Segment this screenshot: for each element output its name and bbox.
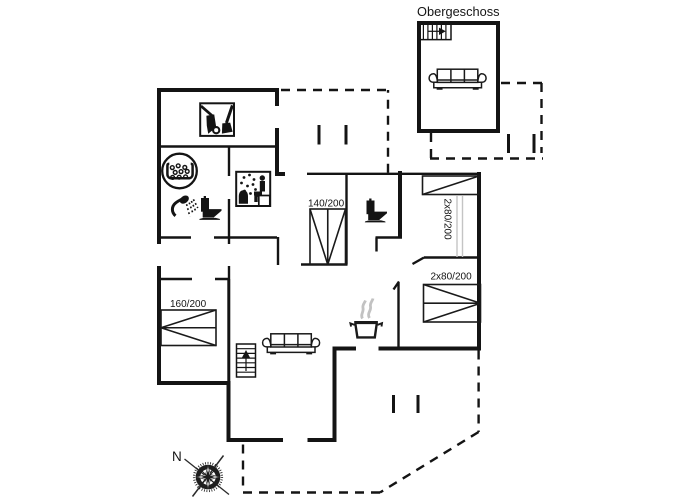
- svg-text:160/200: 160/200: [170, 299, 207, 310]
- svg-text:2x80/200: 2x80/200: [441, 199, 452, 241]
- svg-text:N: N: [172, 449, 182, 464]
- svg-text:140/200: 140/200: [308, 199, 345, 210]
- svg-text:2x80/200: 2x80/200: [431, 272, 473, 283]
- svg-text:Obergeschoss: Obergeschoss: [417, 4, 500, 19]
